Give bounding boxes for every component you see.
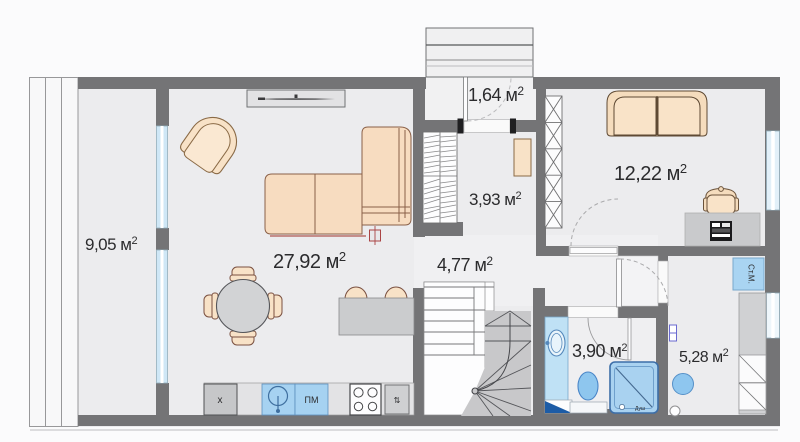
svg-text:x: x: [218, 395, 223, 406]
svg-text:12,22 м2: 12,22 м2: [614, 161, 687, 185]
svg-text:9,05 м2: 9,05 м2: [85, 235, 138, 254]
svg-text:Ст.М.: Ст.М.: [747, 264, 756, 284]
svg-text:4,77 м2: 4,77 м2: [437, 254, 493, 275]
svg-text:27,92 м2: 27,92 м2: [273, 249, 346, 273]
svg-text:ПМ: ПМ: [305, 395, 319, 405]
svg-text:Душ: Душ: [635, 406, 645, 412]
svg-text:5,28 м2: 5,28 м2: [679, 347, 729, 366]
svg-text:3,90 м2: 3,90 м2: [572, 341, 627, 361]
svg-text:1,64 м2: 1,64 м2: [468, 84, 524, 105]
svg-text:3,93 м2: 3,93 м2: [469, 190, 522, 209]
svg-text:⇅: ⇅: [394, 396, 401, 405]
